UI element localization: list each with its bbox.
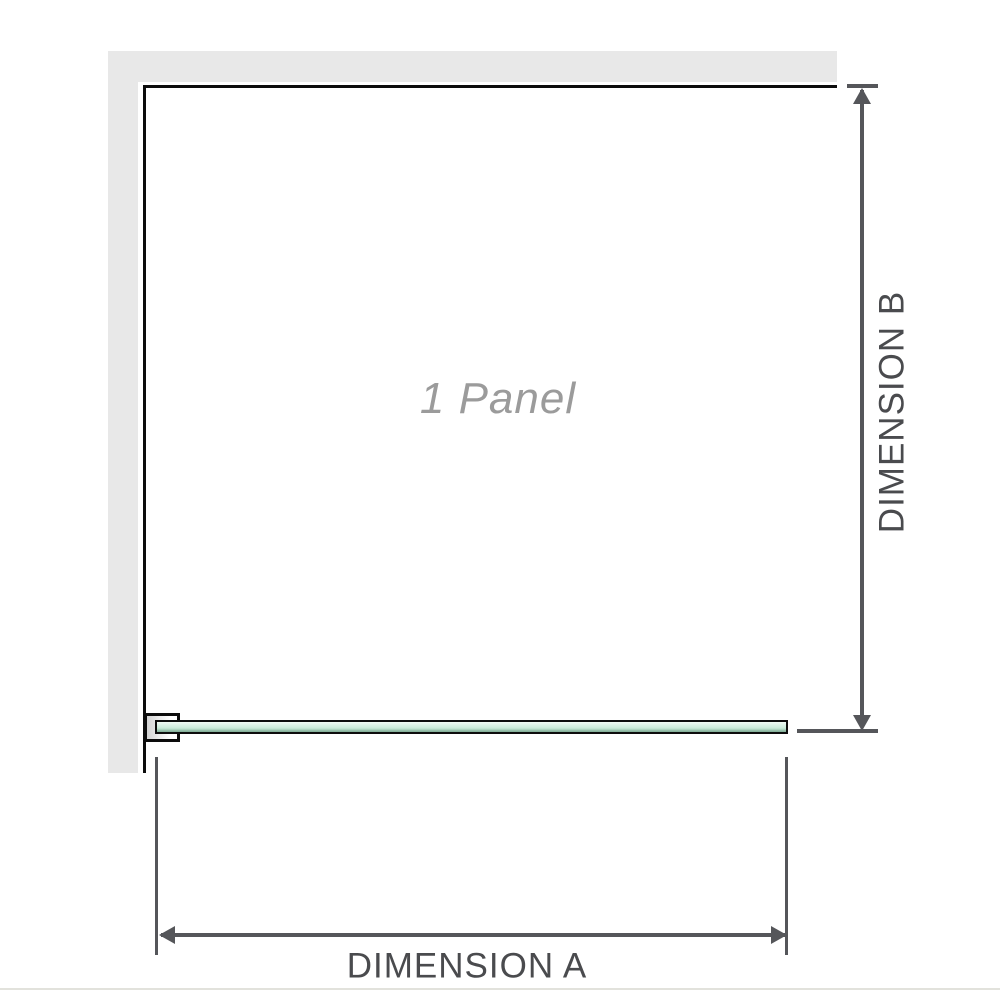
dimension-b-label: DIMENSION B [875,291,910,533]
panel-left-edge [143,85,146,773]
glass-panel-bar [155,720,788,734]
dimension-a-line [161,933,785,937]
dimension-a-left-extension [155,757,158,955]
arrow-right-icon [771,926,787,944]
page-divider [0,988,1000,990]
wall-top-bar [108,51,837,82]
dimension-b-line [860,90,864,718]
panel-dimension-diagram: 1 Panel DIMENSION B DIMENSION A [0,0,1000,1000]
arrow-down-icon [853,715,871,731]
arrow-up-icon [853,88,871,104]
dimension-a-label: DIMENSION A [347,949,587,984]
wall-left-bar [108,51,138,773]
arrow-left-icon [159,926,175,944]
panel-top-edge [143,85,837,88]
panel-count-label: 1 Panel [420,377,576,421]
